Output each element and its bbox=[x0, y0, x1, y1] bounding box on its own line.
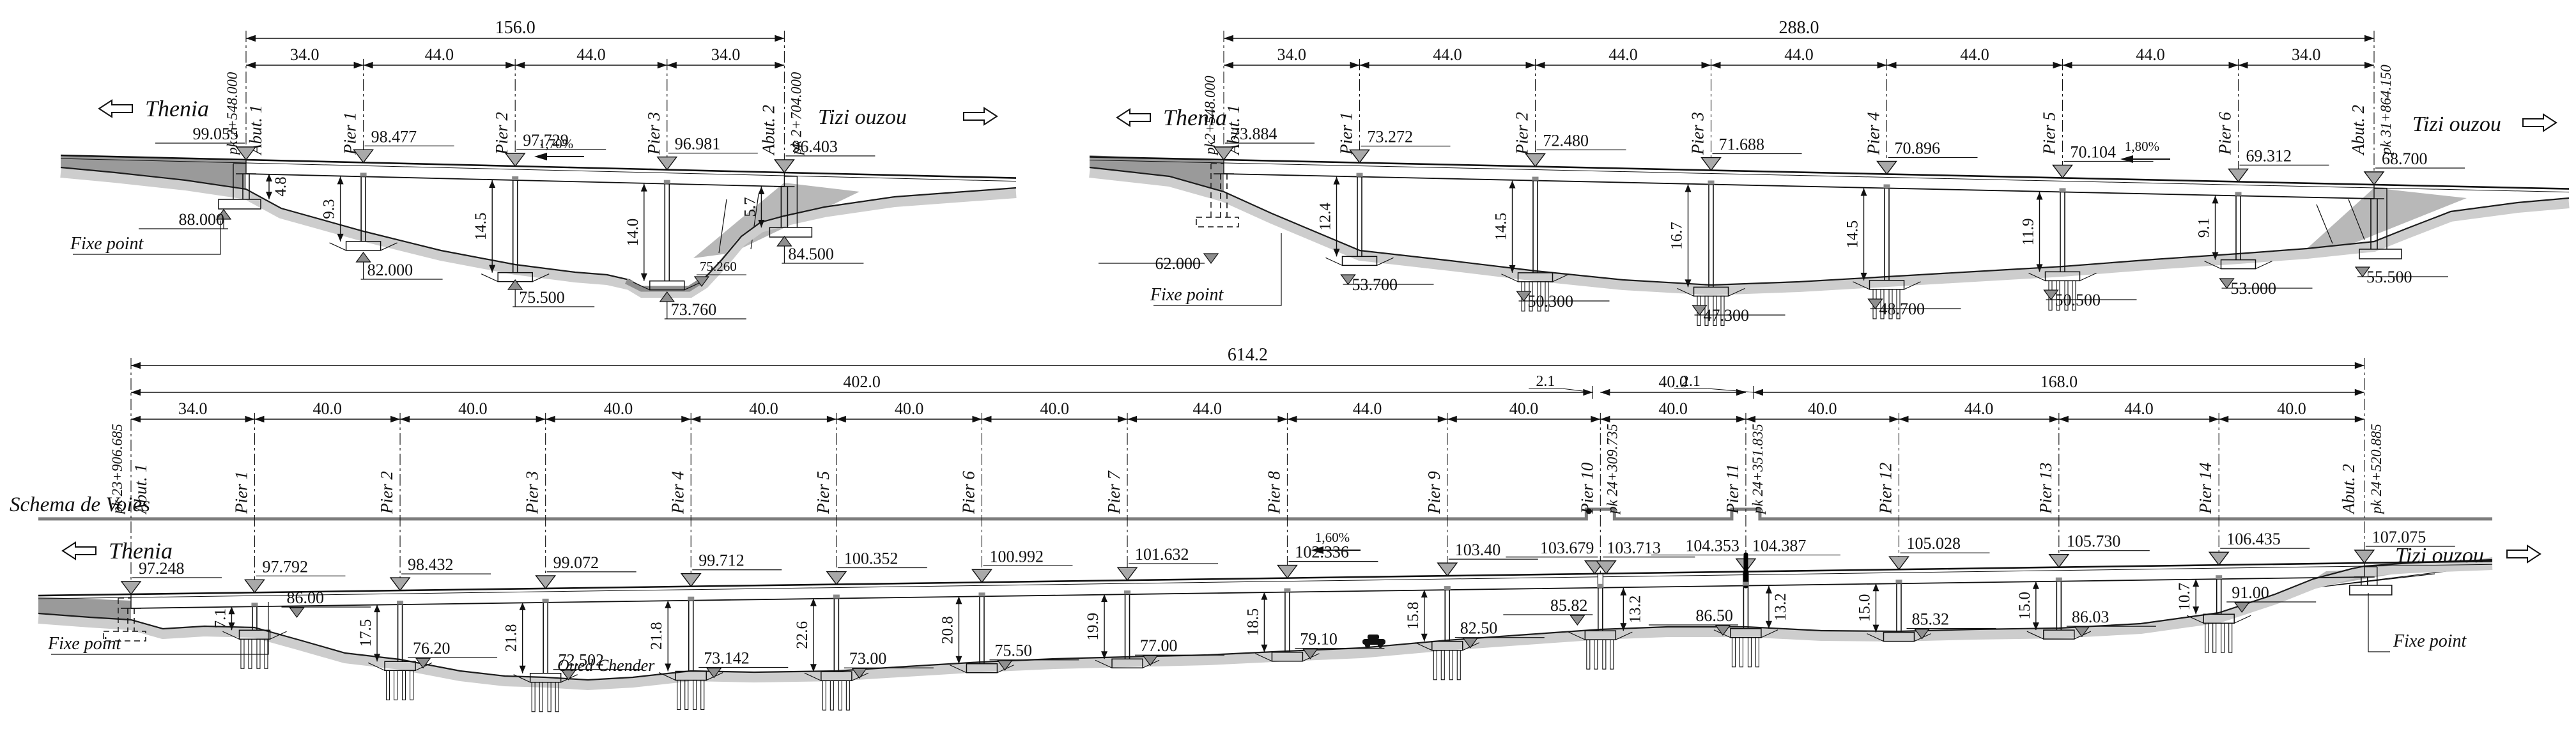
pile bbox=[1433, 650, 1437, 680]
axis-name: Pier 1 bbox=[1337, 112, 1356, 155]
axis-name: Pier 14 bbox=[2196, 463, 2215, 514]
dim-label: 40.0 bbox=[604, 399, 633, 418]
bearing-pad bbox=[1884, 184, 1890, 188]
foundation-level-label: 85.82 bbox=[1550, 596, 1588, 615]
pile bbox=[1610, 640, 1614, 669]
dim-arrow-icon bbox=[515, 62, 525, 68]
fixe-point-label: Fixe point bbox=[47, 634, 122, 654]
axis-name: Pier 7 bbox=[1104, 470, 1123, 514]
dim-arrow-icon bbox=[246, 62, 256, 68]
dim-arrow-icon bbox=[246, 35, 256, 42]
excavation-line bbox=[481, 274, 498, 282]
deck-level-label: 72.480 bbox=[1543, 132, 1589, 150]
ground-band bbox=[61, 173, 1016, 293]
axis-name: Pier 5 bbox=[814, 471, 833, 514]
axis-name: Abut. 2 bbox=[2339, 464, 2358, 515]
viaduct-c-axis-pier-8: Pier 8102.33618.5 bbox=[1244, 413, 1378, 661]
bearing-pad bbox=[2216, 575, 2222, 579]
dim-arrow-icon bbox=[245, 416, 254, 422]
dim-arrow-icon bbox=[1685, 185, 1692, 192]
dim-arrow-icon bbox=[681, 416, 691, 422]
joint-offset-label: 2.1 bbox=[1536, 373, 1555, 390]
bearing-icon bbox=[2355, 550, 2374, 563]
dim-label: 614.2 bbox=[1228, 345, 1268, 365]
dim-arrow-icon bbox=[775, 35, 784, 42]
slope-label: 1,60% bbox=[1315, 530, 1350, 545]
pile bbox=[693, 681, 697, 710]
extra-level-label: 75.260 bbox=[700, 259, 737, 274]
dim-arrow-icon bbox=[337, 176, 344, 184]
bearing-icon bbox=[681, 574, 700, 587]
slope-arrow-icon bbox=[534, 153, 547, 160]
axis-name: Abut. 2 bbox=[759, 105, 778, 156]
ground bbox=[61, 167, 1016, 293]
height-dim-label: 18.5 bbox=[1244, 608, 1261, 636]
bearing-pad bbox=[512, 176, 518, 180]
dim-arrow-icon bbox=[1887, 62, 1897, 68]
dim-label: 34.0 bbox=[711, 45, 741, 64]
height-dim-label: 15.0 bbox=[1856, 594, 1873, 622]
dim-arrow-icon bbox=[691, 416, 700, 422]
axis-name: Pier 1 bbox=[341, 112, 360, 155]
dim-arrow-icon bbox=[1591, 416, 1600, 422]
dim-arrow-icon bbox=[982, 416, 991, 422]
axis-name: Pier 3 bbox=[1688, 112, 1708, 155]
dim-arrow-icon bbox=[1746, 416, 1755, 422]
foundation-level-label: 86.00 bbox=[286, 589, 324, 607]
bearing-icon bbox=[1702, 158, 1721, 171]
deck-level-label: 73.272 bbox=[1368, 128, 1414, 146]
viaduct-c-axis-pier-13: Pier 13105.73015.0 bbox=[2016, 413, 2150, 639]
height-dim-label: 21.8 bbox=[503, 624, 520, 652]
bearing-pad bbox=[1444, 586, 1451, 590]
axis-name: Pier 6 bbox=[2216, 112, 2235, 155]
bridge-elevation-drawing: 156.034.044.044.034.0Abut. 1pk 2+548.000… bbox=[0, 0, 2576, 754]
dim-arrow-icon bbox=[1447, 416, 1457, 422]
pile bbox=[838, 681, 842, 710]
dim-arrow-icon bbox=[1421, 634, 1428, 642]
direction-arrow-icon bbox=[964, 108, 997, 125]
dim-label: 40.0 bbox=[2277, 399, 2306, 418]
dim-arrow-icon bbox=[972, 416, 982, 422]
dim-arrow-icon bbox=[1261, 592, 1267, 600]
fixe-point-label: Fixe point bbox=[1150, 285, 1224, 305]
deck-level-label: 70.104 bbox=[2071, 142, 2117, 161]
dimension-rows: 614.2402.040.0168.02.12.134.040.040.040.… bbox=[131, 345, 2364, 422]
dim-arrow-icon bbox=[2355, 389, 2364, 396]
direction-arrow-icon bbox=[2523, 114, 2556, 131]
viaduct-c-axis-pier-7: Pier 7101.63219.9 bbox=[1084, 413, 1218, 668]
dim-label: 44.0 bbox=[1353, 399, 1382, 418]
bearing-pad bbox=[1743, 582, 1749, 586]
bearing-pad bbox=[2060, 188, 2066, 192]
height-dim-label: 4.8 bbox=[272, 176, 289, 196]
axis-name: Pier 6 bbox=[959, 471, 978, 514]
bearing-pad bbox=[1357, 173, 1363, 177]
dim-arrow-icon bbox=[1899, 416, 1908, 422]
height-dim-label: 11.9 bbox=[2020, 218, 2037, 245]
dim-arrow-icon bbox=[665, 601, 671, 608]
pile bbox=[2229, 623, 2232, 652]
dim-arrow-icon bbox=[1526, 62, 1536, 68]
foundation-level-label: 88.000 bbox=[179, 210, 225, 229]
dim-arrow-icon bbox=[1261, 645, 1267, 652]
height-dim-label: 14.0 bbox=[624, 219, 642, 247]
dim-label: 34.0 bbox=[1277, 45, 1307, 64]
dim-label: 44.0 bbox=[2136, 45, 2165, 64]
bearing-pad bbox=[1284, 589, 1290, 592]
height-dim-label: 14.5 bbox=[472, 212, 490, 240]
bearing-pad bbox=[251, 603, 258, 606]
bearing-pad bbox=[2235, 192, 2242, 196]
deck-level-label: 97.792 bbox=[262, 557, 308, 576]
height-dim-label: 5.7 bbox=[741, 197, 759, 217]
dim-label: 40.0 bbox=[1808, 399, 1837, 418]
height-dim-label: 7.1 bbox=[212, 608, 229, 628]
dim-label: 40.0 bbox=[458, 399, 488, 418]
direction-label-thenia: Thenia bbox=[1163, 105, 1227, 130]
foundation-level-label: 86.03 bbox=[2072, 608, 2109, 626]
direction-arrow-icon bbox=[63, 542, 96, 559]
dim-label: 44.0 bbox=[1784, 45, 1814, 64]
height-dim-label: 13.2 bbox=[1772, 593, 1789, 621]
abutment-footing bbox=[1196, 217, 1238, 227]
deck-level-label: 68.700 bbox=[2382, 150, 2428, 168]
dim-arrow-icon bbox=[641, 273, 647, 281]
height-dim-label: 9.1 bbox=[2196, 218, 2213, 238]
viaduct-b-panel: 288.034.044.044.044.044.044.034.0Abut. 1… bbox=[1090, 18, 2569, 325]
bearing-icon bbox=[1526, 154, 1545, 167]
pile bbox=[257, 639, 260, 668]
circle bbox=[1378, 643, 1383, 648]
axis-name: Pier 12 bbox=[1876, 463, 1895, 514]
pile bbox=[241, 639, 244, 668]
dim-arrow-icon bbox=[2219, 416, 2228, 422]
bearing-pad bbox=[1532, 177, 1539, 181]
foundation-level-label: 91.00 bbox=[2232, 583, 2269, 602]
height-dim-label: 13.2 bbox=[1626, 596, 1644, 624]
bearing-icon bbox=[658, 157, 677, 170]
dim-arrow-icon bbox=[2209, 416, 2219, 422]
dim-arrow-icon bbox=[1711, 62, 1721, 68]
dim-arrow-icon bbox=[505, 62, 515, 68]
foundation-labels: 62.00053.70050.30047.30048.70050.50053.0… bbox=[1099, 233, 2448, 325]
height-dim-label: 16.7 bbox=[1669, 222, 1686, 250]
direction-arrow-icon bbox=[99, 100, 132, 117]
axis-name: Abut. 2 bbox=[2348, 105, 2368, 156]
bearing-pad bbox=[833, 595, 840, 599]
foundation-level-label: 75.500 bbox=[519, 288, 565, 307]
height-dim-label: 21.8 bbox=[648, 622, 665, 650]
axis-name: Pier 4 bbox=[668, 471, 687, 514]
axis-name: Pier 10 bbox=[1577, 462, 1596, 514]
joint-leader bbox=[1708, 389, 1754, 392]
pile bbox=[1603, 640, 1606, 669]
bearing-pad bbox=[2056, 578, 2062, 581]
pile bbox=[1748, 638, 1751, 667]
dim-label: 44.0 bbox=[2124, 399, 2154, 418]
deck bbox=[1090, 157, 2569, 199]
dim-arrow-icon bbox=[1224, 62, 1233, 68]
dim-arrow-icon bbox=[2355, 416, 2364, 422]
pile bbox=[677, 681, 681, 710]
dim-arrow-icon bbox=[837, 416, 846, 422]
dim-arrow-icon bbox=[658, 62, 667, 68]
dim-arrow-icon bbox=[2059, 416, 2069, 422]
deck-level-label: 98.432 bbox=[408, 555, 454, 574]
dim-arrow-icon bbox=[131, 362, 141, 369]
dim-arrow-icon bbox=[2033, 581, 2039, 589]
dim-arrow-icon bbox=[400, 416, 410, 422]
bearing-pad bbox=[664, 180, 670, 184]
dim-arrow-icon bbox=[2063, 62, 2072, 68]
direction-arrow-icon bbox=[1117, 109, 1150, 126]
dim-arrow-icon bbox=[1277, 416, 1287, 422]
deck-level-label: 99.055 bbox=[193, 125, 239, 143]
bearing-pad bbox=[360, 173, 367, 176]
dim-arrow-icon bbox=[667, 62, 677, 68]
deck-level-label: 106.435 bbox=[2226, 530, 2281, 548]
deck-level-label: 69.312 bbox=[2246, 146, 2292, 165]
dim-arrow-icon bbox=[520, 666, 526, 673]
direction-arrow-icon bbox=[2507, 546, 2540, 562]
pile bbox=[1587, 640, 1590, 669]
foundation-level-label: 86.50 bbox=[1695, 606, 1733, 625]
direction-label-tizi-ouzou: Tizi ouzou bbox=[818, 105, 907, 129]
viaduct-c-axis-pier-6: Pier 6100.99220.8 bbox=[939, 413, 1072, 673]
axis-name: Pier 13 bbox=[2036, 463, 2055, 514]
deck-level-label: 99.072 bbox=[553, 553, 599, 572]
height-dim-label: 9.3 bbox=[321, 199, 338, 219]
axis-pk-label: pk 31+864.150 bbox=[2378, 65, 2394, 156]
dim-arrow-icon bbox=[131, 416, 141, 422]
axis-name: Pier 3 bbox=[644, 112, 663, 155]
foundation-level-label: 73.142 bbox=[704, 649, 750, 668]
axis-name: Pier 2 bbox=[377, 471, 396, 514]
bearing-icon bbox=[2049, 555, 2069, 567]
dim-arrow-icon bbox=[2049, 416, 2059, 422]
foundation-level-label: 73.760 bbox=[671, 300, 717, 319]
pile bbox=[2221, 623, 2225, 652]
dim-arrow-icon bbox=[810, 599, 817, 606]
dim-arrow-icon bbox=[1421, 590, 1428, 597]
height-dim-label: 14.5 bbox=[1493, 213, 1510, 241]
viaduct-b-axis-pier-6: Pier 669.3129.1 bbox=[2196, 59, 2329, 269]
pile bbox=[249, 639, 252, 668]
dim-arrow-icon bbox=[1334, 177, 1340, 185]
axis-name: Pier 2 bbox=[1513, 112, 1532, 155]
dim-arrow-icon bbox=[1118, 416, 1127, 422]
dim-arrow-icon bbox=[1287, 416, 1297, 422]
foundation-level-label: 50.500 bbox=[2055, 291, 2101, 309]
deck-level-label: 103.679 bbox=[1540, 539, 1594, 557]
deck-level-label: 104.387 bbox=[1752, 537, 1807, 555]
bearing-icon bbox=[1350, 150, 1369, 163]
abutment-footing bbox=[2350, 585, 2392, 595]
pile bbox=[1739, 638, 1743, 667]
bearing-pad bbox=[1597, 584, 1603, 588]
deck bbox=[38, 561, 2492, 608]
viaduct-a-axis-pier-1: Pier 198.4779.3 bbox=[321, 59, 454, 250]
axis-name: Pier 5 bbox=[2040, 112, 2059, 155]
pile bbox=[265, 639, 268, 668]
pile bbox=[1755, 638, 1759, 667]
viaduct-a-panel: 156.034.044.044.034.0Abut. 1pk 2+548.000… bbox=[61, 18, 1016, 319]
bearing-icon bbox=[2209, 552, 2228, 565]
dim-arrow-icon bbox=[1360, 62, 1369, 68]
deck-level-label: 105.028 bbox=[1906, 534, 1961, 553]
foundation-level-label: 77.00 bbox=[1140, 636, 1178, 655]
deck-level-label: 99.712 bbox=[698, 551, 744, 570]
dim-label: 44.0 bbox=[425, 45, 454, 64]
dim-label: 288.0 bbox=[1779, 18, 1819, 38]
dim-label: 34.0 bbox=[178, 399, 208, 418]
foundation-level-label: 79.10 bbox=[1300, 630, 1337, 649]
bearing-icon bbox=[1438, 563, 1457, 576]
dim-label: 34.0 bbox=[290, 45, 320, 64]
bearing-icon bbox=[1118, 567, 1137, 580]
pile bbox=[846, 681, 849, 710]
axis-name: Pier 11 bbox=[1723, 464, 1742, 514]
bearing-icon bbox=[2229, 169, 2248, 181]
pile bbox=[822, 681, 826, 710]
deck-level-label: 100.992 bbox=[989, 547, 1044, 565]
circle bbox=[1365, 643, 1370, 648]
dim-arrow-icon bbox=[254, 416, 264, 422]
axis-name: Pier 9 bbox=[1424, 471, 1444, 514]
dim-label: 44.0 bbox=[1960, 45, 1989, 64]
dim-label: 402.0 bbox=[843, 373, 881, 391]
deck-level-label: 103.40 bbox=[1455, 541, 1501, 559]
deck-level-label: 70.896 bbox=[1895, 139, 1941, 157]
dim-label: 40.0 bbox=[1658, 399, 1688, 418]
foundation-level-label: 53.700 bbox=[1352, 275, 1398, 294]
deck-level-label: 71.688 bbox=[1719, 135, 1765, 154]
bearing-icon bbox=[245, 580, 264, 592]
foundation-level-label: 84.500 bbox=[788, 245, 834, 263]
dim-arrow-icon bbox=[1754, 389, 1763, 396]
dim-arrow-icon bbox=[1127, 416, 1137, 422]
bearing-icon bbox=[536, 576, 555, 589]
dim-label: 40.0 bbox=[895, 399, 924, 418]
dim-arrow-icon bbox=[1350, 62, 1360, 68]
pile bbox=[830, 681, 833, 710]
deck-level-label: 101.632 bbox=[1135, 545, 1189, 564]
dim-arrow-icon bbox=[641, 184, 647, 192]
pile bbox=[394, 670, 397, 700]
dim-arrow-icon bbox=[2037, 192, 2043, 199]
axis-name: Pier 8 bbox=[1264, 471, 1283, 514]
dim-arrow-icon bbox=[374, 604, 380, 612]
rect bbox=[1368, 635, 1379, 640]
bearing-icon bbox=[354, 150, 373, 162]
pile bbox=[403, 670, 406, 700]
slope-label: 1,70% bbox=[539, 136, 573, 151]
pile bbox=[410, 670, 413, 700]
pile bbox=[1449, 650, 1453, 680]
bearing-icon bbox=[390, 578, 410, 590]
dim-arrow-icon bbox=[775, 62, 784, 68]
deck-level-label: 100.352 bbox=[844, 550, 899, 568]
bearing-icon bbox=[1277, 565, 1297, 578]
dim-label: 40.0 bbox=[1040, 399, 1070, 418]
dim-arrow-icon bbox=[827, 416, 837, 422]
bearing-icon bbox=[121, 581, 141, 594]
deck-level-label: 104.353 bbox=[1685, 537, 1739, 555]
dim-label: 34.0 bbox=[2292, 45, 2321, 64]
dim-arrow-icon bbox=[2193, 606, 2199, 614]
dim-arrow-icon bbox=[1861, 188, 1867, 196]
dim-arrow-icon bbox=[1509, 181, 1516, 188]
pile bbox=[1441, 650, 1444, 680]
bearing-pad bbox=[978, 592, 985, 596]
dim-arrow-icon bbox=[1334, 249, 1340, 256]
viaduct-c-axis-pier-1: Pier 197.7927.1 bbox=[212, 413, 345, 668]
foundation-level-label: 82.50 bbox=[1460, 619, 1498, 638]
dim-label: 40.0 bbox=[1509, 399, 1539, 418]
pile bbox=[2205, 623, 2209, 652]
height-dim-label: 10.7 bbox=[2176, 583, 2193, 611]
dim-label: 168.0 bbox=[2040, 373, 2078, 391]
pile bbox=[1732, 638, 1735, 667]
deck-level-label: 103.713 bbox=[1607, 539, 1661, 557]
foundation-level-label: 75.50 bbox=[994, 642, 1032, 660]
axis-name: Pier 4 bbox=[1864, 112, 1883, 155]
deck-level-label: 73.884 bbox=[1231, 125, 1277, 143]
deck-top-line bbox=[1090, 157, 2569, 188]
height-dim-label: 19.9 bbox=[1084, 613, 1102, 641]
excavation-line bbox=[330, 243, 346, 250]
bearing-pad bbox=[397, 601, 403, 604]
bearing-icon bbox=[775, 160, 794, 173]
dim-label: 40.0 bbox=[313, 399, 343, 418]
car-icon bbox=[1362, 635, 1385, 648]
dim-arrow-icon bbox=[2364, 62, 2374, 68]
dim-label: 44.0 bbox=[576, 45, 606, 64]
bearing-pad bbox=[1708, 181, 1715, 185]
dim-arrow-icon bbox=[2355, 362, 2364, 369]
dim-arrow-icon bbox=[665, 664, 671, 672]
dim-arrow-icon bbox=[1600, 389, 1610, 396]
foundation-level-label: 76.20 bbox=[413, 639, 451, 658]
height-dim-label: 15.0 bbox=[2016, 592, 2033, 620]
dim-arrow-icon bbox=[1736, 416, 1746, 422]
pile bbox=[1457, 650, 1460, 680]
leader-line bbox=[2368, 593, 2390, 652]
fixe-point-label: Fixe point bbox=[2393, 631, 2467, 651]
bearing-pad bbox=[543, 599, 549, 603]
dim-arrow-icon bbox=[2229, 62, 2239, 68]
dim-arrow-icon bbox=[364, 62, 373, 68]
dim-label: 156.0 bbox=[495, 18, 536, 38]
dim-arrow-icon bbox=[1600, 416, 1610, 422]
dim-arrow-icon bbox=[2212, 196, 2219, 203]
dim-arrow-icon bbox=[2364, 35, 2374, 42]
level-marker-down-icon bbox=[1204, 254, 1218, 263]
dim-arrow-icon bbox=[1878, 62, 1887, 68]
bearing-icon bbox=[2053, 165, 2072, 178]
dim-label: 44.0 bbox=[1964, 399, 1994, 418]
excavation-line bbox=[1326, 258, 1343, 265]
drawing-canvas: 156.034.044.044.034.0Abut. 1pk 2+548.000… bbox=[0, 0, 2576, 754]
axis-pk-label: pk 23+906.685 bbox=[109, 424, 125, 515]
slope-label: 1,80% bbox=[2125, 139, 2159, 154]
pile bbox=[685, 681, 688, 710]
foundation-level-label: 85.32 bbox=[1911, 610, 1949, 629]
dim-label: 44.0 bbox=[1192, 399, 1222, 418]
bearing-icon bbox=[505, 153, 525, 166]
dim-arrow-icon bbox=[489, 180, 495, 188]
